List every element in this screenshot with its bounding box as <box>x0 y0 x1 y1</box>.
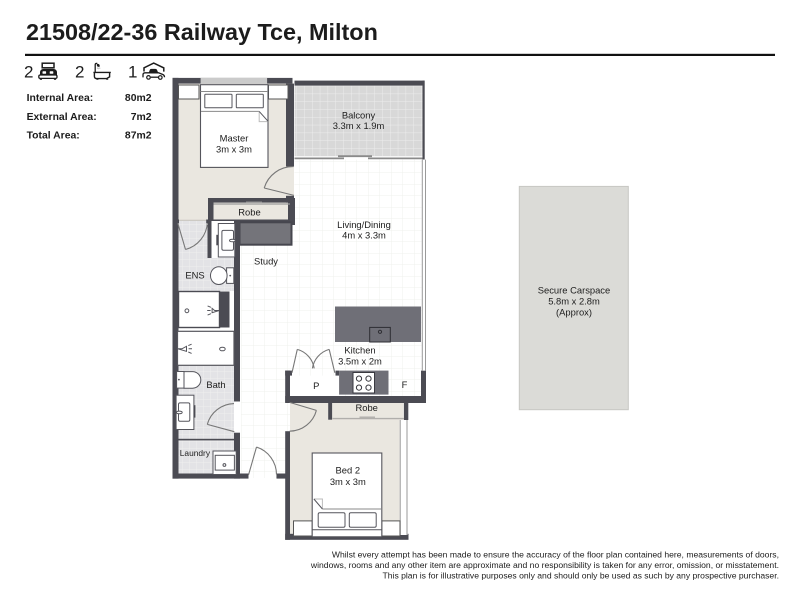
svg-text:Kitchen: Kitchen <box>344 345 375 356</box>
svg-text:Laundry: Laundry <box>180 448 211 458</box>
svg-text:87m2: 87m2 <box>125 131 152 142</box>
svg-text:ENS: ENS <box>185 269 204 280</box>
svg-text:Living/Dining: Living/Dining <box>337 219 391 230</box>
svg-text:Total Area:: Total Area: <box>27 131 80 142</box>
svg-text:Whilst every attempt has been: Whilst every attempt has been made to en… <box>332 550 779 560</box>
svg-text:4m x 3.3m: 4m x 3.3m <box>342 230 386 241</box>
svg-text:1: 1 <box>128 63 137 82</box>
svg-text:Internal Area:: Internal Area: <box>27 93 94 104</box>
svg-text:Secure Carspace: Secure Carspace <box>538 284 610 295</box>
svg-text:2: 2 <box>24 63 33 82</box>
svg-text:windows, rooms and any other i: windows, rooms and any other item are ap… <box>310 560 779 570</box>
svg-text:This plan is for illustrative: This plan is for illustrative purposes o… <box>383 570 780 580</box>
svg-text:F: F <box>402 379 408 390</box>
svg-text:3m x 3m: 3m x 3m <box>216 143 252 154</box>
svg-text:2: 2 <box>75 63 84 82</box>
svg-text:3.5m x 2m: 3.5m x 2m <box>338 356 382 367</box>
svg-text:Bath: Bath <box>206 379 225 390</box>
svg-text:External Area:: External Area: <box>27 112 97 123</box>
svg-text:21508/22-36 Railway Tce, Milto: 21508/22-36 Railway Tce, Milton <box>26 19 378 45</box>
svg-text:80m2: 80m2 <box>125 93 152 104</box>
svg-text:Robe: Robe <box>355 402 377 413</box>
svg-text:Robe: Robe <box>238 207 260 218</box>
svg-text:Balcony: Balcony <box>342 109 376 120</box>
svg-text:3m x 3m: 3m x 3m <box>330 476 366 487</box>
svg-text:P: P <box>313 380 319 391</box>
svg-text:7m2: 7m2 <box>131 112 152 123</box>
svg-text:Master: Master <box>220 132 249 143</box>
svg-text:5.8m x 2.8m: 5.8m x 2.8m <box>548 295 600 306</box>
svg-text:Study: Study <box>254 256 278 267</box>
svg-text:(Approx): (Approx) <box>556 306 592 317</box>
svg-text:3.3m x 1.9m: 3.3m x 1.9m <box>333 120 385 131</box>
svg-text:Bed 2: Bed 2 <box>336 464 361 475</box>
